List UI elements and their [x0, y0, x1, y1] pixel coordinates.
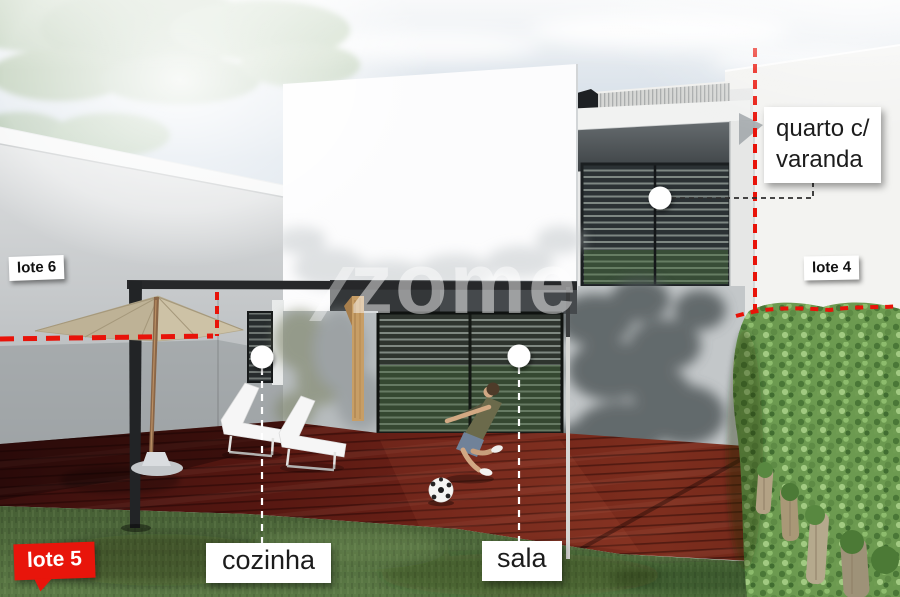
lot-tag-front-text: lote 5 — [27, 547, 83, 572]
fence-post — [566, 287, 570, 337]
lot-tag-left: lote 6 — [9, 255, 65, 281]
bedroom-label-line2: varanda — [776, 144, 869, 175]
main-house-facade — [274, 64, 584, 312]
living-room-door-louvers — [378, 313, 562, 434]
hedge — [727, 303, 900, 597]
lot-tag-right: lote 4 — [804, 256, 860, 281]
property-render: zome quarto c/ varanda cozinha sala lote… — [0, 0, 900, 597]
bedroom-window-louvers — [582, 164, 730, 286]
soccer-ball — [428, 478, 454, 507]
bedroom-marker-dot — [649, 187, 672, 210]
house-3d-render-svg — [0, 0, 900, 597]
living-marker-dot — [508, 345, 531, 368]
main-house-right-wing — [550, 82, 754, 482]
bedroom-label-line1: quarto c/ — [776, 113, 869, 144]
kitchen-label: cozinha — [206, 543, 331, 583]
tag-pointer-icon — [31, 578, 52, 592]
lot-tag-front: lote 5 — [13, 542, 95, 581]
living-room-label: sala — [482, 541, 562, 581]
bedroom-label: quarto c/ varanda — [764, 107, 881, 183]
kitchen-marker-dot — [251, 346, 274, 369]
